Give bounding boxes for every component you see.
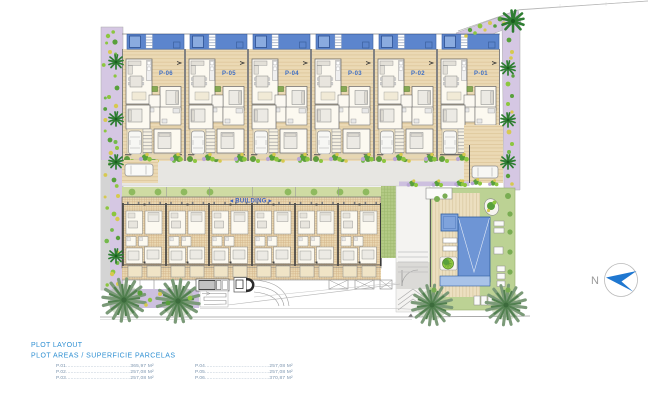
svg-text:P-04: P-04 [285, 71, 299, 77]
svg-text:PLOT LAYOUT: PLOT LAYOUT [31, 342, 83, 349]
svg-text:P.04..........................: P.04....................................… [195, 363, 293, 369]
svg-text:P.02..........................: P.02....................................… [56, 369, 154, 375]
svg-text:P-02: P-02 [411, 71, 425, 77]
svg-text:P.03..........................: P.03....................................… [56, 375, 154, 381]
svg-text:P-05: P-05 [222, 71, 236, 77]
svg-text:P-01: P-01 [474, 71, 488, 77]
svg-text:P.05..........................: P.05....................................… [195, 369, 293, 375]
svg-text:N: N [591, 275, 599, 287]
svg-text:P-06: P-06 [159, 71, 173, 77]
svg-text:PLOT AREAS / SUPERFICIE PARCEL: PLOT AREAS / SUPERFICIE PARCELAS [31, 353, 175, 360]
svg-text:P.01..........................: P.01....................................… [56, 363, 154, 369]
svg-text:P-03: P-03 [348, 71, 362, 77]
svg-text:◂ BUILDING ▸: ◂ BUILDING ▸ [229, 199, 273, 205]
svg-text:P.06..........................: P.06....................................… [195, 375, 293, 381]
